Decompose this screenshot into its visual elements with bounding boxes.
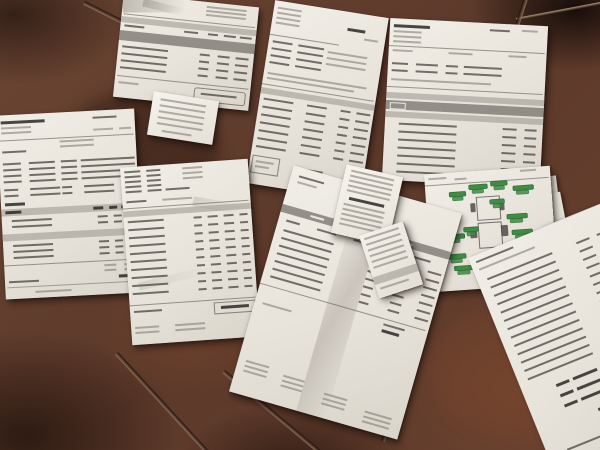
text-line: [297, 51, 323, 57]
text-line: [394, 30, 422, 33]
text-line: [197, 272, 205, 275]
green-part-label: [469, 184, 487, 189]
text-line: [210, 255, 220, 258]
text-line: [184, 31, 198, 34]
text-line: [596, 228, 600, 236]
text-line-group: [361, 411, 396, 434]
text-line: [132, 275, 168, 280]
text-line: [274, 260, 325, 276]
text-line: [99, 246, 109, 249]
text-line: [240, 221, 248, 224]
text-line: [182, 171, 202, 174]
text-line: [104, 264, 116, 267]
text-line-group: [128, 213, 255, 301]
text-line: [224, 222, 234, 225]
text-line: [576, 237, 590, 244]
text-line: [298, 44, 324, 50]
text-line: [501, 160, 515, 163]
green-part-label: [494, 186, 504, 190]
text-line: [361, 293, 371, 298]
text-line: [296, 58, 322, 64]
text-line: [269, 61, 289, 66]
text-line: [392, 69, 408, 72]
text-line: [257, 137, 287, 144]
text-line: [355, 120, 369, 124]
text-line: [241, 229, 249, 232]
text-line: [398, 139, 456, 144]
text-line: [240, 37, 252, 40]
text-line: [147, 184, 161, 187]
text-line: [29, 167, 55, 170]
text-line: [216, 69, 228, 72]
green-part-label: [449, 192, 465, 197]
text-line: [303, 128, 323, 133]
text-line: [397, 155, 455, 160]
text-line: [262, 302, 291, 312]
text-line: [522, 30, 538, 33]
document-invoice-top-left: [113, 0, 259, 111]
text-line: [353, 136, 367, 140]
text-line: [242, 253, 250, 256]
text-line: [349, 160, 363, 164]
text-line: [564, 399, 578, 407]
text-line: [92, 115, 116, 118]
text-line: [572, 368, 597, 381]
text-line: [84, 184, 114, 188]
text-line: [210, 247, 220, 250]
text-line: [208, 215, 218, 218]
text-line: [464, 66, 502, 70]
text-line: [577, 378, 600, 391]
text-line: [217, 62, 229, 65]
text-line: [416, 70, 438, 73]
text-line: [198, 280, 206, 283]
text-line: [124, 170, 140, 173]
text-line: [194, 216, 202, 219]
text-line: [147, 174, 161, 177]
text-line: [2, 150, 26, 153]
text-line: [14, 255, 54, 259]
text-line: [147, 179, 161, 182]
text-line: [99, 240, 109, 243]
text-line: [166, 187, 190, 191]
text-line: [226, 246, 236, 249]
text-line: [236, 57, 249, 60]
text-line: [225, 230, 235, 233]
text-line: [130, 259, 166, 264]
text-line: [30, 179, 56, 182]
document-invoice-center-left: [120, 159, 260, 345]
text-line: [211, 263, 221, 266]
text-line: [242, 245, 250, 248]
text-line: [501, 152, 515, 155]
text-line: [197, 264, 205, 267]
text-line: [120, 66, 166, 73]
text-line: [60, 139, 94, 143]
text-line: [556, 379, 570, 387]
text-line: [148, 189, 162, 192]
text-line: [81, 157, 135, 162]
text-line: [132, 283, 168, 288]
text-line: [586, 262, 600, 269]
text-line: [129, 235, 165, 240]
text-line: [209, 239, 219, 242]
text-line: [196, 256, 204, 259]
text-line: [3, 175, 21, 178]
text-line: [445, 72, 457, 75]
text-line: [364, 39, 378, 43]
text-line: [446, 65, 458, 68]
text-line: [61, 160, 77, 163]
text-line: [339, 118, 349, 122]
text-line: [60, 144, 94, 148]
document-invoice-top-right: [382, 18, 548, 188]
text-line: [524, 145, 536, 148]
text-line: [62, 178, 78, 181]
text-line: [307, 104, 327, 109]
text-line: [358, 301, 368, 306]
text-line: [175, 322, 205, 326]
text-line: [121, 59, 167, 66]
text-line: [567, 430, 600, 450]
green-part-label: [510, 219, 522, 223]
text-line: [133, 291, 169, 296]
text-line: [162, 197, 192, 201]
text-line: [116, 251, 124, 253]
green-part-label: [453, 197, 463, 201]
text-line: [583, 254, 597, 261]
text-line: [235, 64, 248, 67]
text-line: [336, 141, 346, 145]
text-line-group: [1, 126, 35, 138]
text-line: [397, 163, 455, 168]
text-line-group: [242, 360, 275, 383]
text-line: [119, 127, 131, 130]
text-line: [234, 71, 247, 74]
grout-line-top-right: [516, 2, 600, 21]
text-line: [182, 166, 202, 169]
text-line: [5, 211, 21, 215]
text-line: [62, 186, 72, 189]
text-line-group: [275, 7, 318, 33]
green-part-label: [458, 271, 470, 275]
text-line: [243, 261, 251, 264]
text-line: [198, 67, 208, 70]
text-line: [503, 128, 517, 131]
text-line: [270, 54, 290, 59]
text-line: [104, 269, 116, 272]
text-line: [390, 301, 402, 306]
text-line: [392, 294, 404, 299]
text-line-group: [182, 166, 207, 183]
text-line: [131, 267, 167, 272]
text-line: [126, 190, 142, 193]
text-line: [351, 144, 365, 148]
text-line: [215, 76, 227, 79]
text-line: [109, 206, 117, 209]
text-line: [228, 286, 238, 289]
outline-box: [250, 155, 280, 177]
text-line: [198, 74, 208, 77]
photo-of-documents-on-tile-floor: [0, 0, 600, 450]
text-line: [30, 192, 60, 196]
outline-box: [214, 300, 257, 315]
text-line: [1, 131, 31, 135]
text-line: [260, 121, 290, 128]
text-line: [36, 289, 72, 293]
text-line: [13, 249, 53, 253]
text-line: [502, 136, 516, 139]
text-line: [125, 180, 141, 183]
text-line: [9, 280, 39, 284]
text-line: [124, 24, 144, 28]
small-receipt-1: [147, 91, 219, 145]
text-line: [122, 45, 168, 52]
text-line: [244, 285, 252, 288]
text-line: [523, 161, 535, 164]
text-line-group: [320, 393, 353, 416]
text-line: [118, 81, 138, 85]
text-line: [416, 309, 430, 315]
outline-box: [390, 102, 406, 110]
text-line: [337, 133, 347, 137]
text-line: [258, 129, 288, 136]
text-line: [125, 175, 141, 178]
text-line: [363, 285, 373, 290]
text-line: [244, 277, 252, 280]
text-line: [333, 157, 343, 161]
text-line: [194, 224, 202, 227]
text-line: [381, 329, 399, 337]
text-line: [135, 325, 159, 329]
text-line: [392, 62, 408, 65]
text-line-group: [364, 227, 411, 273]
text-line: [61, 172, 77, 175]
green-part-label: [513, 185, 533, 190]
text-line: [276, 22, 300, 28]
text-line: [12, 224, 52, 228]
text-line: [212, 279, 222, 282]
text-line: [286, 220, 300, 226]
text-line: [523, 153, 535, 156]
text-line: [125, 185, 141, 188]
text-line: [579, 245, 593, 252]
text-line: [200, 53, 210, 56]
text-line: [301, 144, 321, 149]
text-line: [334, 149, 344, 153]
text-line: [29, 173, 55, 176]
green-part-label: [507, 213, 527, 218]
text-line-group: [567, 411, 600, 450]
text-line: [227, 262, 237, 265]
text-line: [270, 275, 321, 291]
text-line-group: [60, 139, 96, 151]
text-line: [4, 180, 22, 183]
text-line: [4, 189, 18, 192]
text-line-group: [280, 375, 313, 398]
text-line: [175, 327, 205, 331]
text-line: [208, 33, 218, 36]
text-line: [221, 304, 249, 309]
text-line: [387, 309, 399, 314]
text-line-group: [325, 51, 375, 76]
text-line: [299, 152, 319, 157]
text-line: [490, 29, 510, 32]
text-line: [12, 218, 52, 222]
text-line: [30, 186, 60, 190]
text-line: [350, 152, 364, 156]
text-line: [261, 113, 291, 120]
text-line: [279, 245, 330, 261]
text-line: [256, 160, 274, 165]
text-line: [146, 169, 160, 172]
text-line: [356, 112, 370, 116]
text-line: [524, 137, 536, 140]
green-part-label: [464, 227, 478, 232]
text-line: [195, 240, 203, 243]
text-line: [525, 129, 537, 132]
text-line: [208, 223, 218, 226]
text-line: [3, 169, 21, 172]
text-line: [272, 268, 323, 284]
text-line: [398, 131, 456, 136]
text-line: [262, 105, 292, 112]
text-line: [419, 301, 433, 307]
green-part-label: [472, 189, 483, 193]
text-line-group: [124, 168, 168, 196]
text-line: [297, 181, 317, 188]
text-line: [449, 52, 473, 55]
text-line: [304, 120, 324, 125]
text-line: [1, 126, 31, 130]
text-line: [115, 245, 123, 247]
text-line: [93, 206, 103, 210]
text-line: [463, 73, 501, 77]
text-line: [199, 288, 207, 291]
text-line: [256, 145, 286, 152]
text-line: [590, 271, 600, 278]
text-line: [213, 287, 223, 290]
green-part-label: [490, 199, 504, 204]
green-part-label: [451, 259, 462, 263]
text-line: [302, 136, 322, 141]
text-line: [273, 40, 293, 45]
text-line: [416, 63, 438, 66]
text-line: [398, 147, 456, 152]
text-line: [1, 119, 45, 124]
text-line: [5, 202, 25, 206]
text-line: [239, 213, 247, 216]
text-line-group: [268, 40, 328, 76]
text-line: [135, 330, 159, 334]
text-line-group: [393, 30, 424, 47]
text-line: [114, 214, 122, 216]
text-line: [233, 78, 246, 81]
text-line: [347, 28, 365, 34]
text-line: [211, 271, 221, 274]
text-line: [128, 219, 164, 224]
text-line: [228, 278, 238, 281]
text-line: [218, 55, 230, 58]
text-line: [243, 269, 251, 272]
text-line: [126, 200, 146, 203]
text-line: [427, 271, 441, 277]
text-line: [295, 65, 321, 71]
text-line: [241, 237, 249, 240]
text-line: [199, 60, 209, 63]
text-line: [128, 227, 164, 232]
text-line: [29, 161, 55, 164]
text-line: [596, 287, 600, 294]
text-line: [502, 144, 516, 147]
text-line: [3, 163, 21, 166]
text-line: [423, 286, 437, 292]
text-line: [306, 112, 326, 117]
text-line: [61, 166, 77, 169]
text-line: [223, 214, 233, 217]
text-line: [98, 215, 108, 218]
text-line: [394, 24, 430, 29]
text-line: [129, 243, 165, 248]
text-line: [183, 176, 203, 179]
text-line: [114, 220, 122, 222]
text-line: [393, 49, 413, 52]
text-line: [414, 317, 428, 323]
text-line: [224, 35, 236, 38]
text-line: [225, 238, 235, 241]
text-line: [271, 47, 291, 52]
text-line: [226, 254, 236, 257]
text-line: [277, 252, 328, 268]
text-line: [98, 221, 108, 224]
text-line: [121, 52, 167, 59]
text-line: [338, 126, 348, 130]
text-line: [281, 237, 332, 253]
text-line: [93, 128, 113, 131]
text-line: [84, 190, 114, 194]
grout-line-bottom-left: [115, 352, 208, 450]
text-line: [201, 93, 237, 99]
text-line: [508, 55, 526, 58]
green-part-label: [491, 181, 507, 186]
green-part-label: [448, 254, 466, 259]
text-line: [227, 270, 237, 273]
green-part-label: [493, 204, 501, 208]
green-part-label: [467, 232, 475, 236]
text-line: [130, 251, 166, 256]
text-line: [255, 165, 269, 169]
text-line: [341, 110, 351, 114]
text-line: [4, 195, 18, 198]
text-line: [100, 252, 110, 255]
text-line: [354, 128, 368, 132]
text-line: [209, 231, 219, 234]
text-line: [399, 123, 457, 128]
text-line: [13, 243, 53, 247]
green-part-label: [516, 190, 528, 194]
text-line: [593, 279, 600, 286]
text-line: [62, 192, 72, 195]
text-line: [560, 389, 574, 397]
text-line: [196, 248, 204, 251]
text-line: [195, 232, 203, 235]
text-line: [425, 278, 439, 284]
text-line: [393, 35, 421, 38]
text-line: [421, 294, 435, 300]
text-line: [581, 388, 600, 401]
text-line-group: [135, 320, 235, 337]
text-line: [115, 239, 123, 241]
